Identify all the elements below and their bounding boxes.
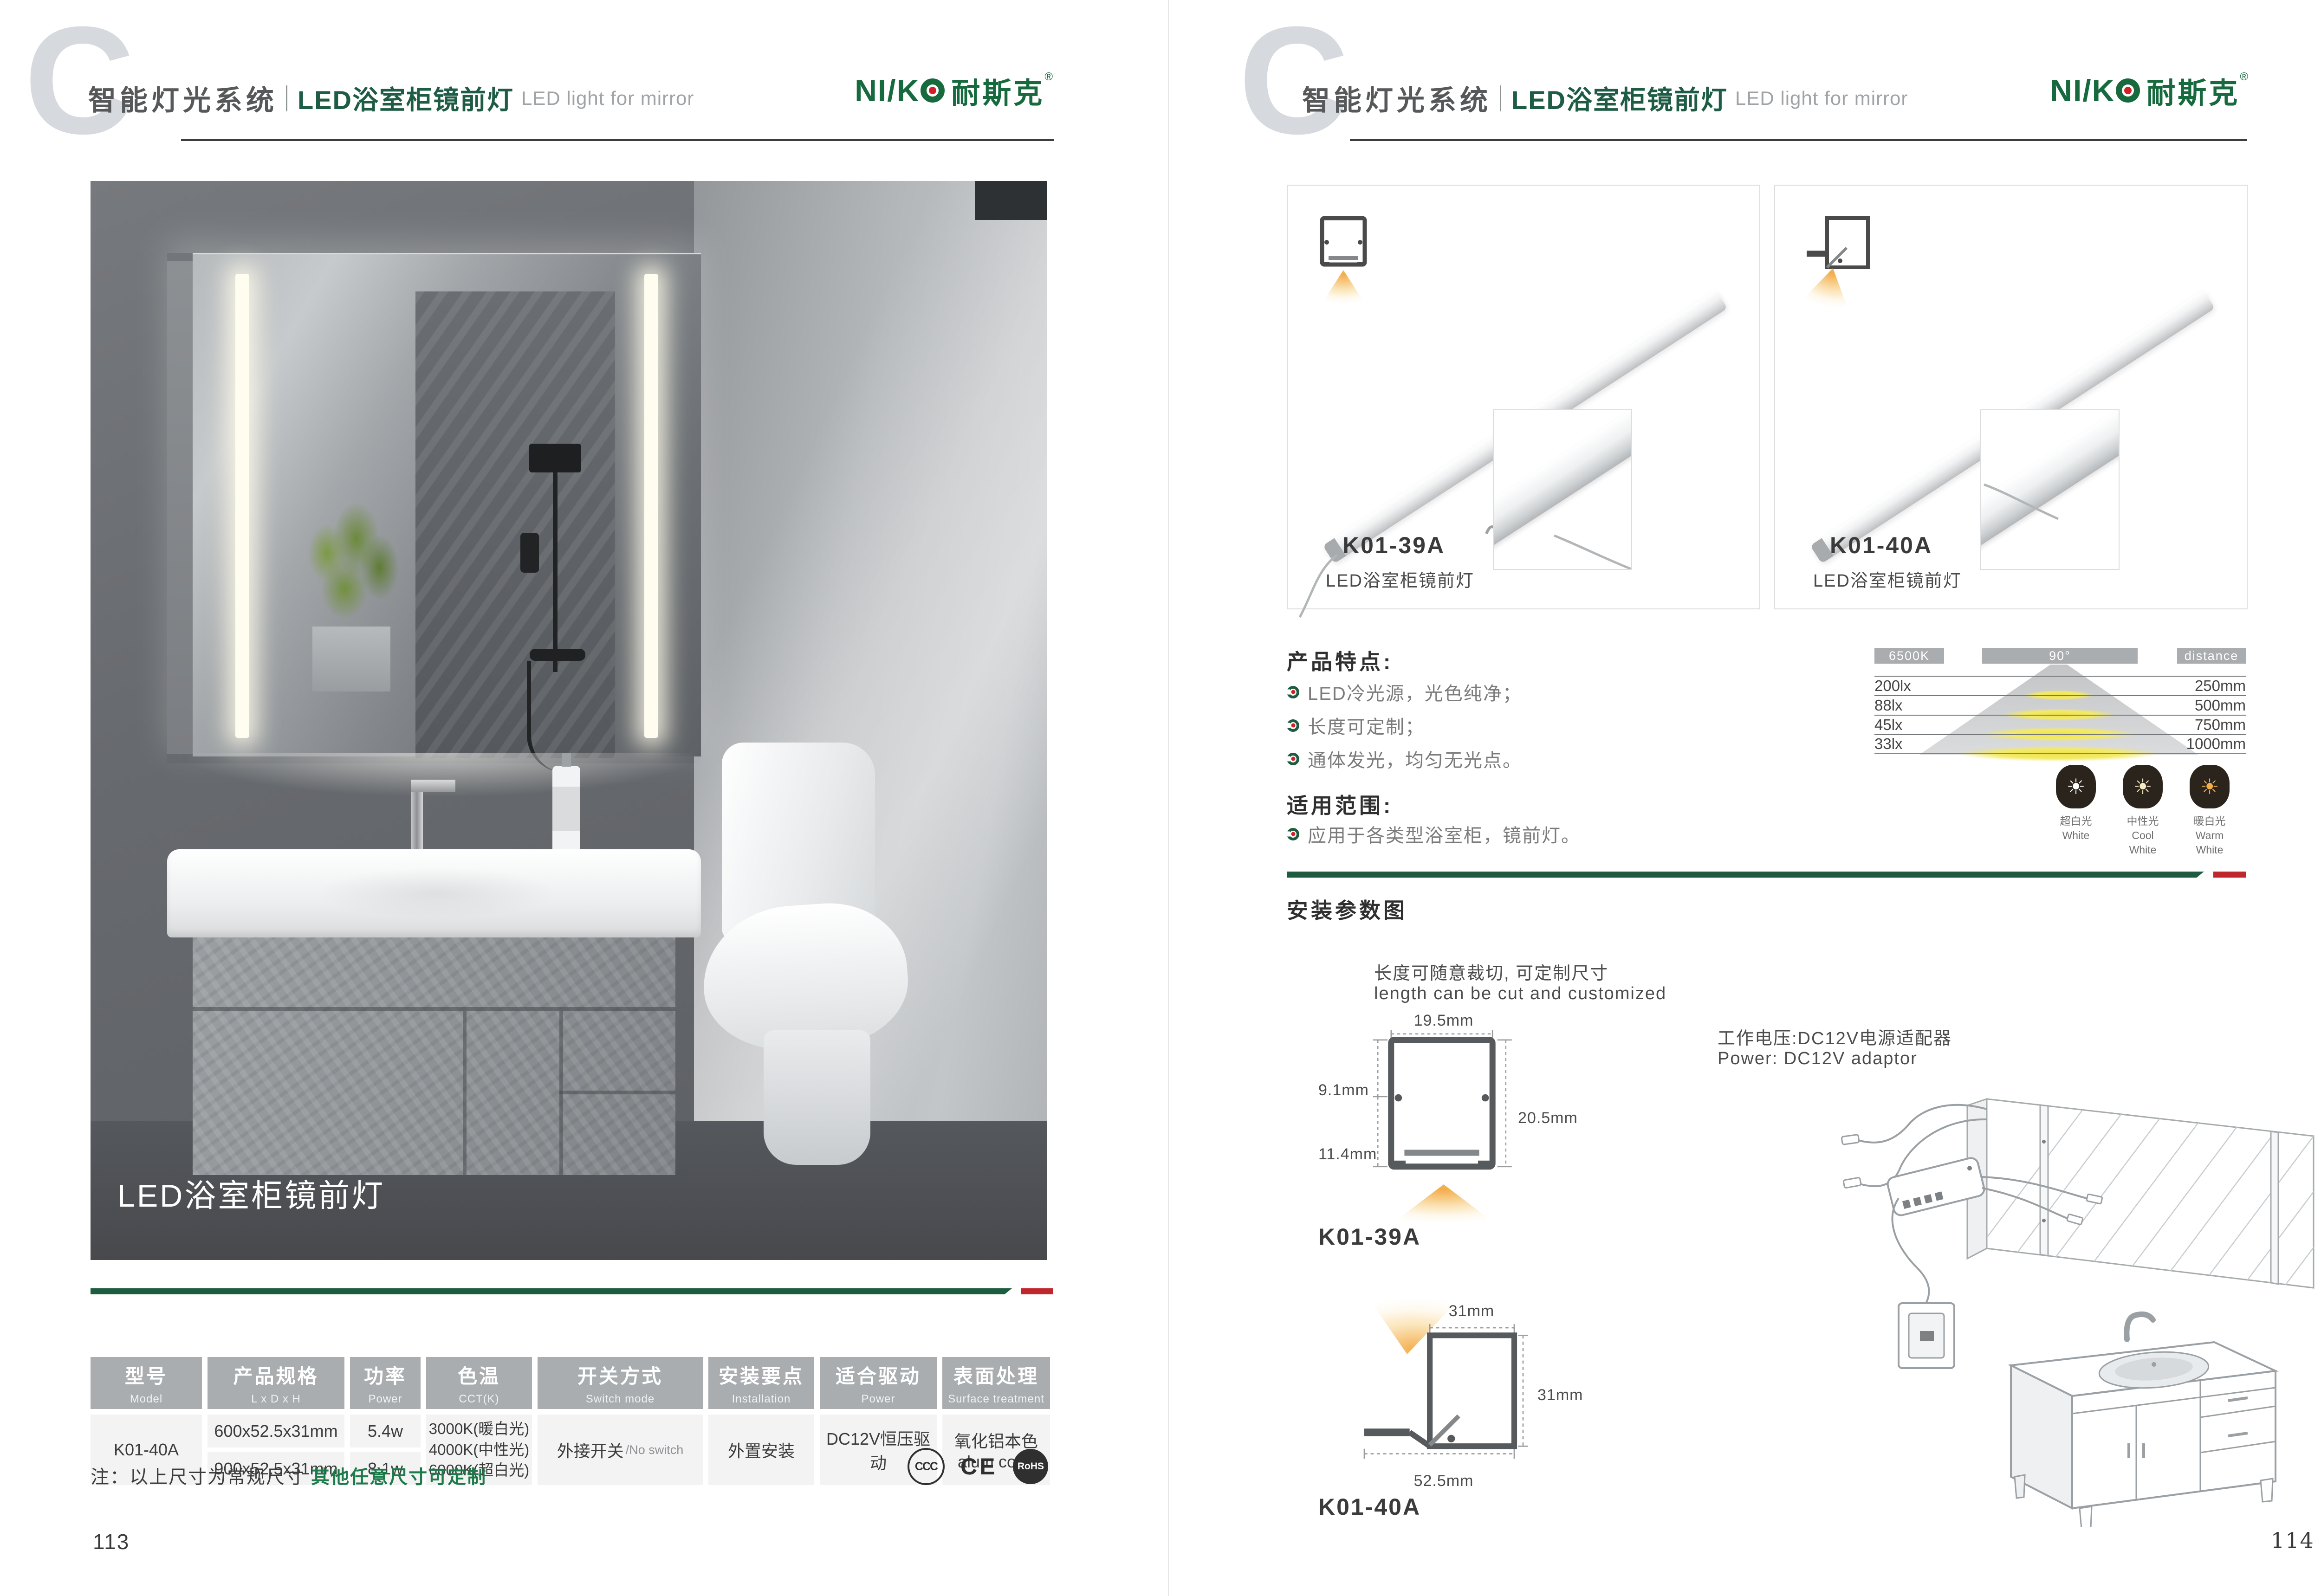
inset-wire [1981, 471, 2060, 522]
shower-head [529, 444, 581, 472]
light-glow [1772, 258, 1879, 350]
page-header: 智能灯光系统 LED浴室柜镜前灯 LED light for mirror [1302, 78, 1908, 118]
product-card-k01-39a: K01-39A LED浴室柜镜前灯 [1287, 185, 1760, 609]
brand-logo-cn: 耐斯克 [951, 70, 1044, 111]
application-item: 应用于各类型浴室柜，镜前灯。 [1287, 821, 1581, 847]
ccc-mark-icon: CCC [908, 1448, 945, 1485]
profile-cross-section [1355, 1323, 1532, 1461]
photometry-row: 200lx 250mm [1874, 676, 2246, 695]
col-header-surface: 表面处理Surface treatment [942, 1357, 1050, 1409]
mirror-cabinet [167, 253, 701, 763]
led-strip-right [644, 274, 658, 738]
profile-model-k01-40a: K01-40A [1318, 1493, 1421, 1520]
brand-logo-latin: NI/K [855, 73, 920, 108]
faucet [2127, 1314, 2153, 1339]
product-card-k01-40a: K01-40A LED浴室柜镜前灯 [1774, 185, 2248, 609]
wire-connector [1843, 1177, 1861, 1188]
photometry-row: 88lx 500mm [1874, 695, 2246, 715]
product-name: LED浴室柜镜前灯 [1813, 566, 1962, 592]
dim-left-top: 9.1mm [1318, 1081, 1369, 1099]
col-header-model: 型号Model [91, 1357, 202, 1409]
note-custom-size: 其他任意尺寸可定制 [311, 1467, 486, 1487]
light-glow [1302, 270, 1385, 335]
catalog-page-right: C 智能灯光系统 LED浴室柜镜前灯 LED light for mirror … [1170, 0, 2321, 1596]
header-product-title-cn: LED浴室柜镜前灯 [298, 79, 514, 117]
led-bar-right [2271, 1131, 2278, 1284]
lux-value: 45lx [1874, 716, 1903, 734]
page-number-right: 114 [2271, 1528, 2315, 1553]
toilet [722, 743, 982, 1188]
product-model: K01-39A [1342, 532, 1445, 559]
door-gap-vertical [463, 1011, 467, 1175]
rohs-mark-icon: RoHS [1013, 1449, 1048, 1484]
header-category: 智能灯光系统 [88, 78, 278, 118]
vanity-leg [2015, 1475, 2025, 1498]
cell-power-1: 5.4w [350, 1415, 421, 1447]
photometry-cct-header: 6500K [1874, 648, 1944, 664]
photometry-row: 33lx 1000mm [1874, 734, 2246, 754]
photometry-row: 45lx 750mm [1874, 715, 2246, 734]
photometry-diagram: 6500K 90° distance 200lx 250mm 88lx 500m… [1874, 648, 2246, 757]
distance-value: 1000mm [2186, 735, 2246, 753]
photometry-angle-header: 90° [1982, 648, 2138, 664]
sink-top [167, 849, 701, 937]
toilet-base [764, 1030, 870, 1165]
spec-table-header-row: 型号Model 产品规格L x D x H 功率Power 色温CCT(K) 开… [91, 1357, 1050, 1409]
mirror-face [193, 253, 701, 756]
cct-option-warm-white: ☀ 暖白光Warm White [2185, 765, 2234, 857]
page-header: 智能灯光系统 LED浴室柜镜前灯 LED light for mirror [88, 78, 694, 118]
header-underline [1350, 139, 2247, 141]
drawer-gap-horizontal [193, 1007, 675, 1011]
mirror-cabinet-side [167, 261, 193, 754]
plug [1920, 1331, 1934, 1341]
plant-pot [312, 627, 390, 691]
cell-installation: 外置安装 [708, 1415, 814, 1485]
product-name: LED浴室柜镜前灯 [1326, 566, 1474, 592]
brand-logo: NI/K 耐斯克 ® [855, 70, 1053, 111]
photo-shelf [975, 181, 1047, 220]
bathroom-photo: LED浴室柜镜前灯 [91, 181, 1047, 1260]
brand-logo: NI/K 耐斯克 ® [2050, 70, 2248, 111]
cut-note-cn: 长度可随意裁切, 可定制尺寸 [1374, 959, 1608, 984]
profile-drawing-k01-39a: 19.5mm 9.1mm 11.4mm 20.5mm [1318, 1012, 1578, 1216]
lux-value: 33lx [1874, 735, 1903, 753]
table-note: 注：以上尺寸为常规尺寸 其他任意尺寸可定制 [91, 1462, 486, 1489]
profile-cross-section [1369, 1030, 1514, 1187]
cct-option-cool-white: ☀ 中性光Cool White [2119, 765, 2167, 857]
dim-top: 31mm [1434, 1302, 1509, 1320]
inset-wire [1549, 526, 1632, 570]
col-header-cct: 色温CCT(K) [426, 1357, 532, 1409]
shower-pipe [553, 472, 558, 672]
ce-mark-icon: CE [960, 1453, 997, 1480]
corner-channel-profile-icon [1803, 212, 1873, 272]
bullet-icon [1287, 719, 1299, 732]
bullet-icon [1287, 753, 1299, 765]
soap-bottle-pump [562, 753, 571, 767]
photometry-rows: 200lx 250mm 88lx 500mm 45lx 750mm 33lx 1… [1874, 676, 2246, 754]
col-header-installation: 安装要点Installation [708, 1357, 814, 1409]
header-product-title-en: LED light for mirror [521, 87, 694, 110]
feature-item: LED冷光源，光色纯净； [1287, 678, 1522, 705]
divider-green-bar [91, 1288, 1012, 1294]
detail-inset [1493, 409, 1632, 570]
mirror-reflection-shower-wall [415, 291, 615, 758]
header-product-title-en: LED light for mirror [1735, 87, 1908, 110]
hand-shower [520, 533, 539, 573]
power-note-cn: 工作电压:DC12V电源适配器 [1718, 1024, 1952, 1049]
soap-bottle [552, 766, 580, 854]
cut-note-en: length can be cut and customized [1374, 984, 1666, 1004]
square-channel-profile-icon [1316, 212, 1371, 272]
dim-left-bottom: 11.4mm [1318, 1145, 1377, 1163]
distance-value: 750mm [2195, 716, 2246, 734]
sun-icon-cool-white: ☀ [2123, 765, 2163, 808]
product-model: K01-40A [1830, 532, 1932, 559]
power-note-en: Power: DC12V adaptor [1718, 1049, 1918, 1069]
vanity-leg [2080, 1506, 2092, 1527]
sun-icon-white: ☀ [2056, 765, 2096, 808]
header-divider-bar [286, 85, 287, 111]
drawer-gap-right [559, 1091, 675, 1094]
col-header-power: 功率Power [350, 1357, 421, 1409]
dim-right: 31mm [1537, 1386, 1583, 1404]
cct-options: ☀ 超白光White ☀ 中性光Cool White ☀ 暖白光Warm Whi… [2052, 765, 2234, 857]
header-divider-bar [1500, 85, 1501, 111]
soap-bottle-label [552, 787, 580, 831]
brand-logo-latin: NI/K [2050, 73, 2115, 108]
lux-value: 200lx [1874, 677, 1911, 695]
header-category: 智能灯光系统 [1302, 78, 1491, 118]
profile-drawing-k01-40a: 31mm 31mm 52.5mm [1318, 1286, 1615, 1491]
dim-bottom: 52.5mm [1402, 1472, 1485, 1490]
feature-item: 长度可定制； [1287, 712, 1425, 739]
led-strip-left [235, 274, 249, 738]
bullet-icon [1287, 686, 1299, 698]
section-divider [91, 1288, 1053, 1294]
dim-top: 19.5mm [1407, 1012, 1481, 1030]
vanity-body [193, 937, 675, 1175]
brand-logo-o-icon [921, 78, 945, 103]
installation-illustration [1829, 1081, 2321, 1527]
header-underline [181, 139, 1054, 141]
section-divider [1287, 872, 2246, 878]
faucet-spout [411, 780, 455, 792]
page-number-left: 113 [93, 1529, 130, 1554]
col-header-switch: 开关方式Switch mode [538, 1357, 703, 1409]
divider-red-accent [2213, 872, 2246, 878]
bullet-icon [1287, 828, 1299, 840]
profile-section-icon [1803, 212, 1873, 274]
page-gutter-line [1168, 0, 1169, 1596]
photometry-distance-header: distance [2177, 648, 2246, 664]
brand-logo-cn: 耐斯克 [2146, 70, 2240, 111]
vanity [167, 849, 701, 1174]
shower-light-stripes [415, 291, 615, 758]
photo-caption: LED浴室柜镜前灯 [117, 1170, 385, 1216]
install-section-title: 安装参数图 [1287, 894, 1407, 924]
col-header-driver: 适合驱动Power [820, 1357, 937, 1409]
sun-icon-warm-white: ☀ [2190, 765, 2230, 808]
distance-value: 250mm [2195, 677, 2246, 695]
lux-value: 88lx [1874, 697, 1903, 714]
application-title: 适用范围: [1287, 789, 1393, 820]
cell-spec-1: 600x52.5x31mm [207, 1415, 344, 1447]
brand-logo-o-icon [2116, 78, 2140, 103]
features-title: 产品特点: [1287, 645, 1393, 676]
registered-mark: ® [2240, 71, 2248, 84]
cell-switch: 外接开关 /No switch [538, 1415, 703, 1485]
led-bar-left [2040, 1105, 2048, 1256]
registered-mark: ® [1044, 71, 1053, 84]
feature-item: 通体发光，均匀无光点。 [1287, 745, 1522, 772]
header-product-title-cn: LED浴室柜镜前灯 [1511, 79, 1728, 117]
detail-inset [1980, 409, 2120, 570]
vanity-leg [2261, 1479, 2273, 1502]
divider-red-accent [1021, 1288, 1053, 1294]
shower-valve [530, 649, 585, 661]
basin [316, 867, 557, 919]
col-header-spec: 产品规格L x D x H [207, 1357, 344, 1409]
divider-green-bar [1287, 872, 2204, 878]
plant [292, 496, 408, 640]
catalog-page-left: C 智能灯光系统 LED浴室柜镜前灯 LED light for mirror … [0, 0, 1167, 1596]
distance-value: 500mm [2195, 697, 2246, 714]
dim-right: 20.5mm [1518, 1109, 1578, 1127]
profile-model-k01-39a: K01-39A [1318, 1223, 1421, 1250]
cct-option-white: ☀ 超白光White [2052, 765, 2100, 857]
wire-connector [1841, 1135, 1859, 1145]
certification-marks: CCC CE RoHS [908, 1448, 1048, 1485]
profile-section-icon [1316, 212, 1371, 274]
